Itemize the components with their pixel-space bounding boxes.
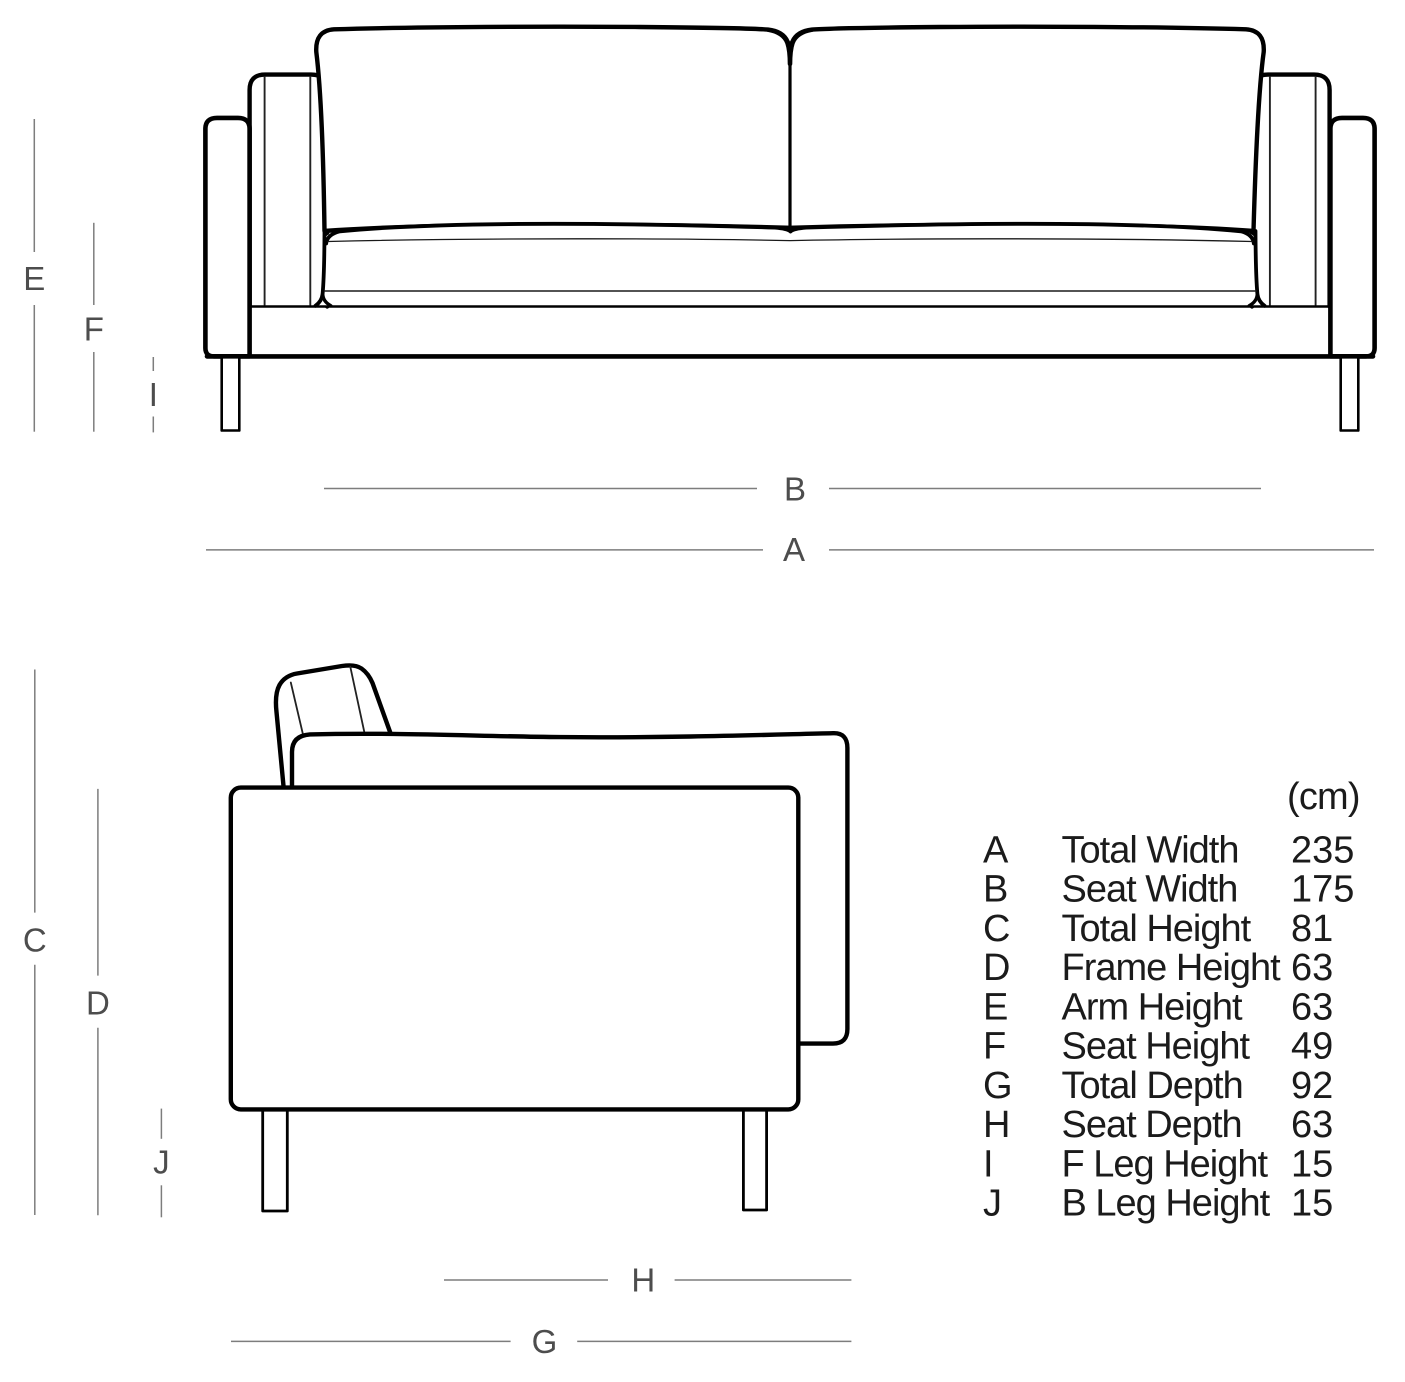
svg-text:63: 63 [1291, 947, 1333, 989]
svg-text:E: E [23, 260, 45, 297]
svg-text:Arm Height: Arm Height [1062, 986, 1243, 1028]
svg-text:G: G [983, 1065, 1013, 1107]
svg-text:H: H [631, 1261, 655, 1298]
svg-text:F: F [983, 1026, 1006, 1068]
svg-text:175: 175 [1291, 869, 1354, 911]
svg-text:C: C [23, 922, 47, 959]
svg-text:15: 15 [1291, 1143, 1333, 1185]
svg-text:F Leg Height: F Leg Height [1062, 1143, 1269, 1185]
svg-text:63: 63 [1291, 1104, 1333, 1146]
svg-text:15: 15 [1291, 1183, 1333, 1225]
svg-text:235: 235 [1291, 829, 1354, 871]
svg-text:92: 92 [1291, 1065, 1333, 1107]
svg-text:E: E [983, 986, 1008, 1028]
svg-text:H: H [983, 1104, 1010, 1146]
svg-text:I: I [983, 1143, 994, 1185]
svg-text:B Leg Height: B Leg Height [1062, 1183, 1271, 1225]
svg-text:C: C [983, 908, 1010, 950]
svg-text:I: I [149, 376, 158, 413]
svg-text:B: B [784, 471, 806, 508]
svg-text:B: B [983, 869, 1008, 911]
svg-text:(cm): (cm) [1287, 776, 1360, 818]
svg-text:D: D [983, 947, 1010, 989]
svg-text:F: F [84, 311, 104, 348]
svg-text:J: J [983, 1183, 1002, 1225]
svg-text:Seat Height: Seat Height [1062, 1026, 1251, 1068]
svg-text:D: D [86, 985, 110, 1022]
svg-text:Frame Height: Frame Height [1062, 947, 1282, 989]
svg-text:A: A [783, 531, 805, 568]
svg-text:J: J [153, 1144, 170, 1181]
svg-text:49: 49 [1291, 1026, 1333, 1068]
svg-text:63: 63 [1291, 986, 1333, 1028]
svg-text:A: A [983, 829, 1009, 871]
svg-text:G: G [532, 1323, 558, 1360]
svg-text:Total Height: Total Height [1062, 908, 1252, 950]
svg-text:Seat Width: Seat Width [1062, 869, 1238, 911]
svg-text:81: 81 [1291, 908, 1333, 950]
svg-text:Total Width: Total Width [1062, 829, 1239, 871]
svg-text:Seat Depth: Seat Depth [1062, 1104, 1242, 1146]
svg-text:Total Depth: Total Depth [1062, 1065, 1243, 1107]
